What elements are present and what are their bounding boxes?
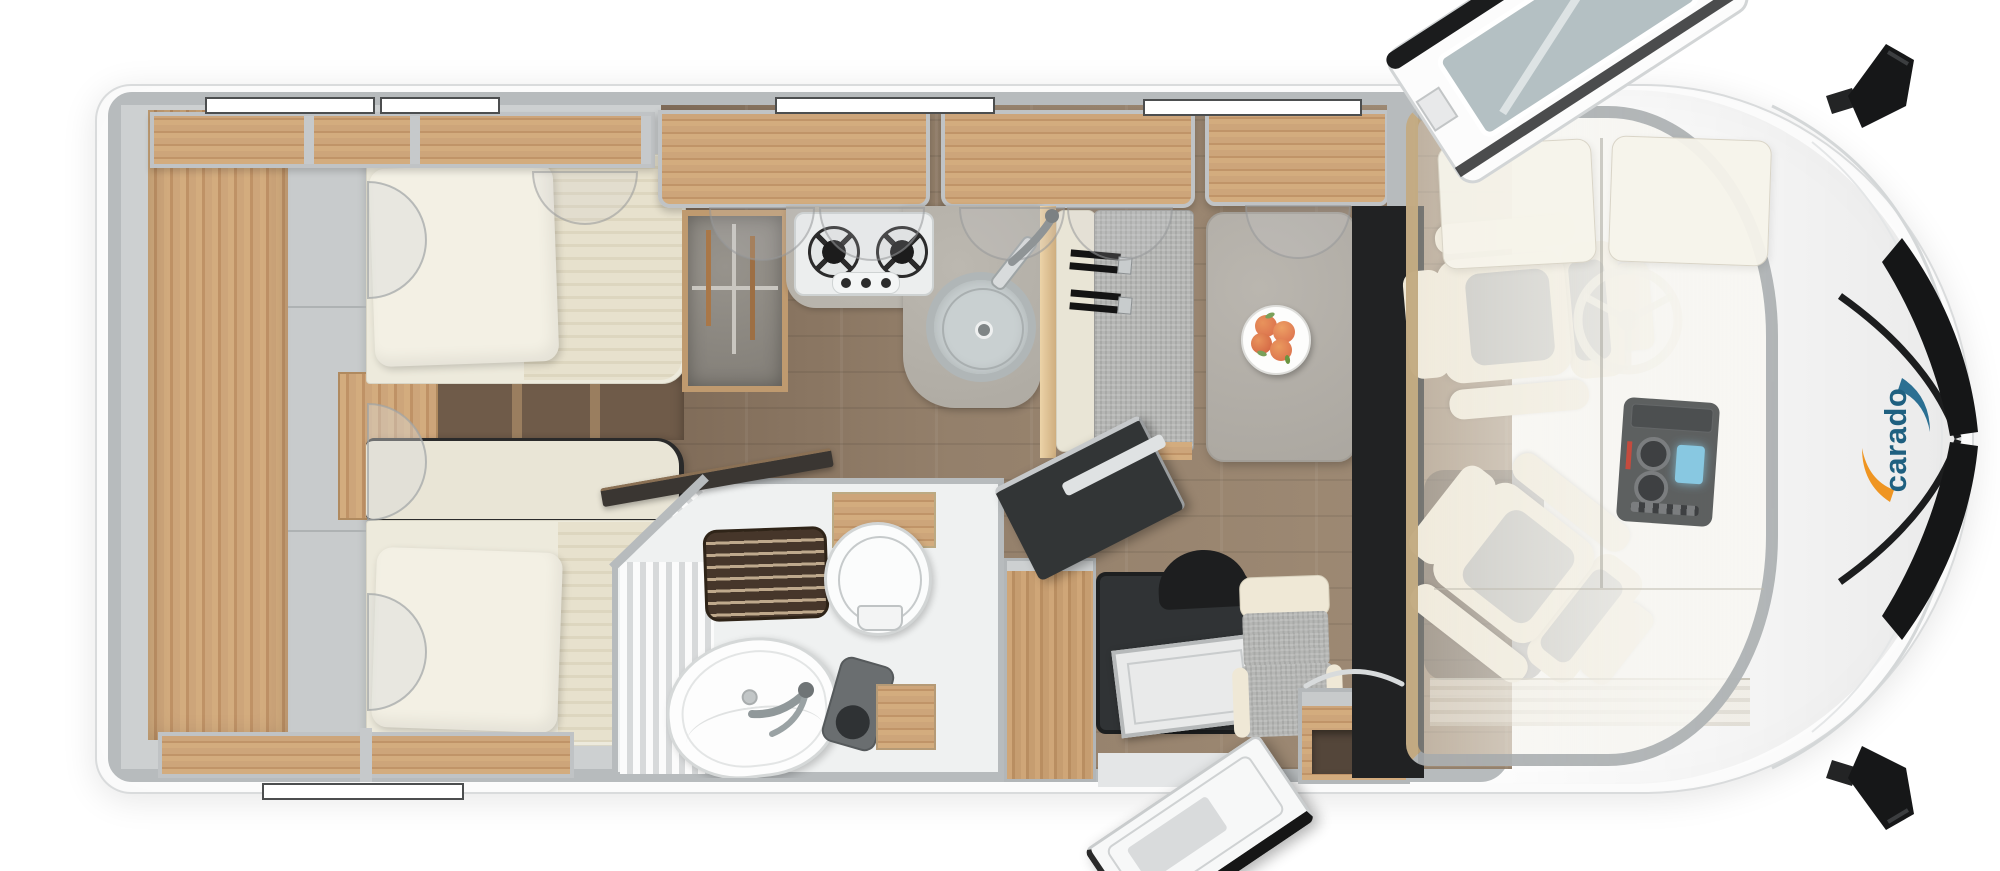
windshield-seam [1772, 106, 1960, 768]
mirror-housing [1848, 44, 1914, 128]
hood-seam [1812, 142, 1942, 732]
mirror-bottom [1826, 746, 1914, 830]
vector-details-over: carado [0, 0, 2000, 871]
window-top-kitchen [775, 97, 995, 114]
logo-text: carado [1878, 388, 1913, 493]
window-bottom-bedroom [262, 783, 464, 800]
window-top-dinette [1143, 99, 1362, 116]
roof-skylight-open [1383, 0, 1753, 188]
window-top-bedroom-1 [205, 97, 375, 114]
carado-logo: carado [1862, 378, 1930, 502]
motorhome-floorplan: carado [0, 0, 2000, 871]
mirror-housing [1848, 746, 1914, 830]
side-cabinet-rail [1306, 671, 1402, 686]
window-top-bedroom-2 [380, 97, 500, 114]
mirror-top [1826, 44, 1914, 128]
